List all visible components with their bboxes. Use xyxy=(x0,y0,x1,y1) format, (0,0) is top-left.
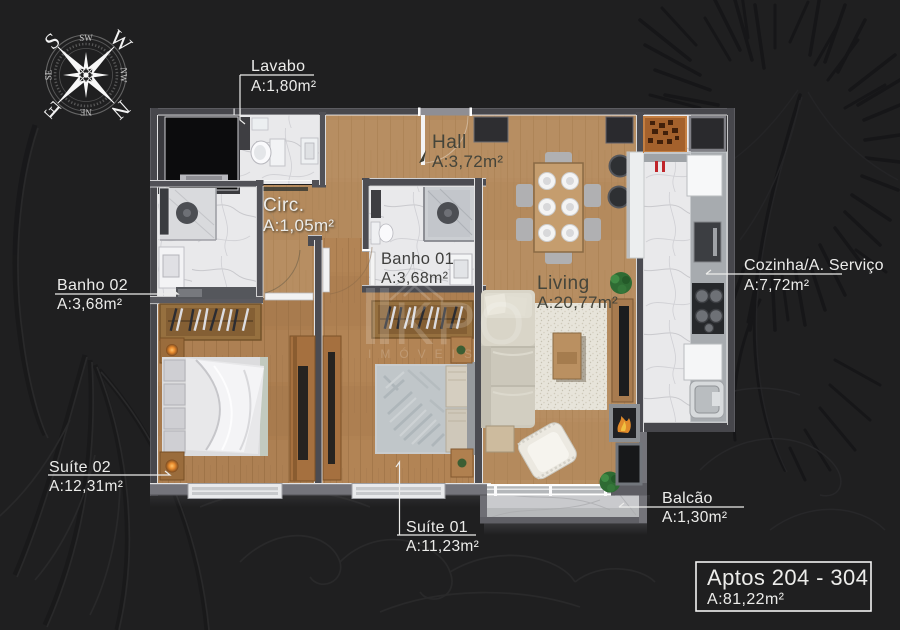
svg-text:A:1,80m²: A:1,80m² xyxy=(251,78,316,95)
svg-text:Cozinha/A. Serviço: Cozinha/A. Serviço xyxy=(744,257,884,274)
svg-text:A:12,31m²: A:12,31m² xyxy=(49,478,123,495)
svg-text:A:1,30m²: A:1,30m² xyxy=(662,509,727,526)
svg-text:IMÓVEIS: IMÓVEIS xyxy=(368,346,481,361)
svg-text:Aptos 204 - 304: Aptos 204 - 304 xyxy=(707,565,868,590)
svg-text:A:20,77m²: A:20,77m² xyxy=(537,293,618,312)
svg-text:NE: NE xyxy=(80,107,92,117)
svg-text:A:11,23m²: A:11,23m² xyxy=(406,538,479,555)
svg-text:NW: NW xyxy=(119,68,129,83)
svg-text:Suíte 02: Suíte 02 xyxy=(49,459,111,476)
svg-text:Balcão: Balcão xyxy=(662,490,713,507)
svg-text:Banho 02: Banho 02 xyxy=(57,277,128,294)
svg-text:Banho 01: Banho 01 xyxy=(381,250,454,268)
svg-text:Lavabo: Lavabo xyxy=(251,58,305,75)
svg-text:A:3,68m²: A:3,68m² xyxy=(381,270,449,287)
svg-text:Hall: Hall xyxy=(432,132,467,153)
svg-text:Living: Living xyxy=(537,273,590,294)
svg-text:SW: SW xyxy=(79,33,93,43)
svg-text:A:3,72m²: A:3,72m² xyxy=(432,152,503,171)
svg-text:A:3,68m²: A:3,68m² xyxy=(57,296,122,313)
svg-text:A:1,05m²: A:1,05m² xyxy=(263,216,334,235)
svg-text:A:7,72m²: A:7,72m² xyxy=(744,277,809,294)
svg-text:A:81,22m²: A:81,22m² xyxy=(707,591,785,608)
svg-text:SE: SE xyxy=(44,69,54,80)
svg-text:Suíte 01: Suíte 01 xyxy=(406,519,468,536)
svg-text:Circ.: Circ. xyxy=(263,195,305,216)
